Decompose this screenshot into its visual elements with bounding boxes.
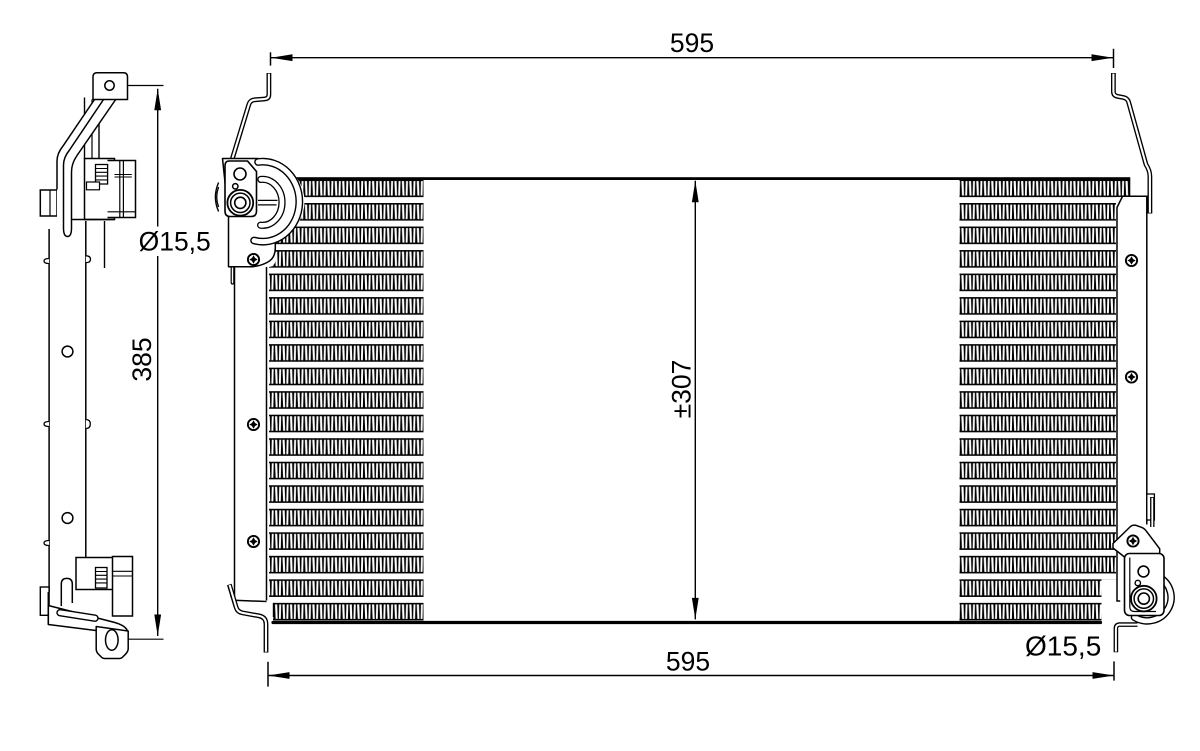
svg-text:385: 385 <box>127 337 157 381</box>
svg-text:±307: ±307 <box>667 360 697 419</box>
svg-text:595: 595 <box>666 647 710 677</box>
svg-text:595: 595 <box>670 28 714 58</box>
svg-text:Ø15,5: Ø15,5 <box>139 227 211 257</box>
svg-text:Ø15,5: Ø15,5 <box>1025 631 1101 662</box>
